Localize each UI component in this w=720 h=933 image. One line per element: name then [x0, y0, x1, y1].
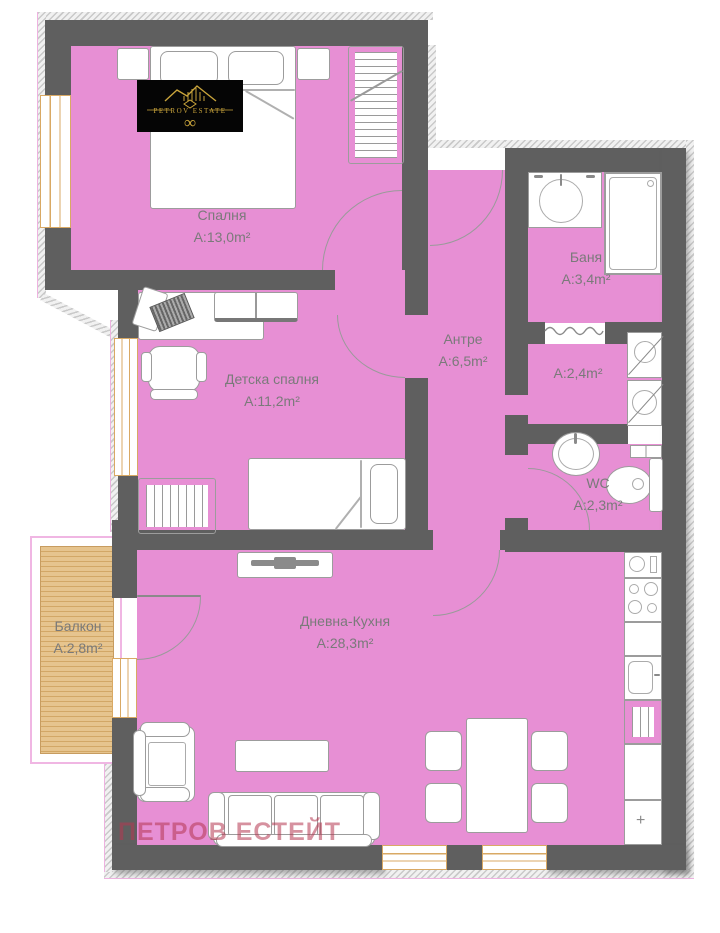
room-name: Дневна-Кухня: [300, 610, 390, 632]
wall: [447, 845, 482, 870]
nightstand-icon: [297, 48, 330, 80]
sliding-door-wave-icon: [543, 322, 605, 338]
door-opening-laundry: [505, 395, 527, 415]
room-area: A:2,3m²: [573, 494, 622, 516]
door-opening-bedroom: [335, 270, 405, 290]
kitchen-counter-icon: [624, 622, 662, 656]
hatch-border-right: [686, 140, 694, 876]
room-area: A:2,4m²: [553, 362, 602, 384]
wall: [505, 148, 685, 172]
faucet-icon: [654, 674, 660, 676]
window-icon-bottom-2: [482, 845, 547, 870]
room-label-hallway: Антре A:6,5m²: [438, 328, 487, 372]
tv-icon-center: [274, 557, 296, 569]
room-label-kids-bedroom: Детска спалня A:11,2m²: [225, 368, 319, 412]
wall: [500, 530, 505, 550]
coffee-table-icon: [235, 740, 329, 772]
fridge-detail-icon: [629, 556, 645, 572]
dining-chair-icon: [531, 783, 568, 823]
hatch-border-notch-v: [428, 45, 436, 143]
armchair-seat-icon: [148, 742, 186, 786]
wall: [45, 20, 71, 98]
chair-back-icon: [150, 389, 198, 400]
door-opening-kids: [405, 315, 428, 378]
dining-chair-icon: [531, 731, 568, 771]
logo-infinity-icon: ∞: [184, 113, 196, 132]
nightstand-icon: [117, 48, 149, 80]
wc-shelf-icon: [630, 445, 662, 458]
counter-mark-icon: [586, 175, 595, 178]
wall: [45, 270, 335, 290]
wall: [505, 415, 528, 455]
burner-icon: [629, 584, 639, 594]
wall: [405, 378, 428, 532]
shower-tray-icon: [609, 177, 657, 270]
chair-armrest-icon: [141, 352, 152, 382]
hatch-border-notch-h: [428, 140, 505, 148]
window-icon-living-left: [112, 658, 137, 718]
room-name: Баня: [561, 246, 610, 268]
hatch-border-bath-top: [505, 140, 690, 148]
armchair-back-icon: [133, 730, 146, 796]
room-label-balcony: Балкон A:2,8m²: [53, 615, 102, 659]
fridge-detail-icon: [650, 556, 657, 573]
room-name: Балкон: [53, 615, 102, 637]
window-icon-bottom-1: [382, 845, 447, 870]
room-name: Детска спалня: [225, 368, 319, 390]
washer-drum-icon: [634, 341, 656, 363]
sink-basin-icon: [628, 661, 653, 694]
chair-armrest-icon: [196, 352, 207, 382]
room-label-wc: WC A:2,3m²: [573, 472, 622, 516]
wall: [45, 20, 428, 46]
counter-mark-icon: [534, 175, 543, 178]
wall: [505, 530, 662, 552]
desk-chair-icon: [148, 346, 200, 392]
room-name: Спалня: [194, 204, 251, 226]
burner-icon: [647, 603, 657, 613]
shelf-cabinet-icon: [214, 292, 298, 322]
dishwasher-icon: [624, 700, 662, 744]
room-label-living-kitchen: Дневна-Кухня A:28,3m²: [300, 610, 390, 654]
door-opening-living: [433, 530, 500, 550]
room-label-bedroom: Спалня A:13,0m²: [194, 204, 251, 248]
window-icon-bedroom: [40, 95, 71, 228]
vent-cross-icon: +: [636, 812, 645, 830]
agency-logo: PETROV ESTATE ∞: [137, 80, 243, 132]
room-label-laundry: A:2,4m²: [553, 362, 602, 384]
floor-plan: + Спалня A:13,0m² Детска спалня A:11,2m²…: [0, 0, 720, 933]
wall: [547, 845, 686, 870]
sofa-armrest-icon: [363, 792, 380, 840]
burner-icon: [628, 600, 642, 614]
kitchen-counter-icon: [624, 744, 662, 800]
wall: [402, 20, 428, 270]
logo-emblem-icon: PETROV ESTATE ∞: [137, 80, 243, 132]
faucet-icon: [560, 174, 562, 186]
dining-chair-icon: [425, 783, 462, 823]
wardrobe-icon: [138, 478, 216, 534]
toilet-tank-icon: [649, 458, 663, 512]
room-area: A:28,3m²: [300, 632, 390, 654]
door-opening-wc: [505, 455, 527, 518]
room-area: A:13,0m²: [194, 226, 251, 248]
pillow-icon: [370, 464, 398, 524]
wall: [405, 290, 428, 315]
hatch-border-top: [37, 12, 433, 20]
wall: [112, 845, 382, 870]
window-icon-kids: [114, 338, 138, 476]
dining-chair-icon: [425, 731, 462, 771]
door-leaf-balcony: [137, 595, 201, 597]
room-name: WC: [573, 472, 622, 494]
armchair-armrest-icon: [140, 787, 190, 802]
faucet-icon: [574, 433, 577, 444]
wall: [112, 520, 137, 598]
room-area: A:6,5m²: [438, 350, 487, 372]
wardrobe-icon: [348, 46, 404, 164]
burner-icon: [644, 582, 658, 596]
toilet-detail-icon: [632, 478, 644, 490]
hatch-border-bottom: [104, 870, 694, 879]
armchair-armrest-icon: [140, 722, 190, 737]
shower-head-icon: [647, 180, 654, 187]
wall: [405, 270, 428, 290]
hatch-border-step: [40, 293, 120, 340]
room-name: Антре: [438, 328, 487, 350]
wall: [505, 148, 528, 395]
room-area: A:2,8m²: [53, 637, 102, 659]
room-area: A:11,2m²: [225, 390, 319, 412]
room-area: A:3,4m²: [561, 268, 610, 290]
dining-table-icon: [466, 718, 528, 833]
blanket-line-icon: [360, 460, 362, 528]
wall: [662, 148, 686, 870]
room-label-bathroom: Баня A:3,4m²: [561, 246, 610, 290]
watermark-text: ПЕТРОВ ЕСТЕЙТ: [118, 818, 341, 847]
